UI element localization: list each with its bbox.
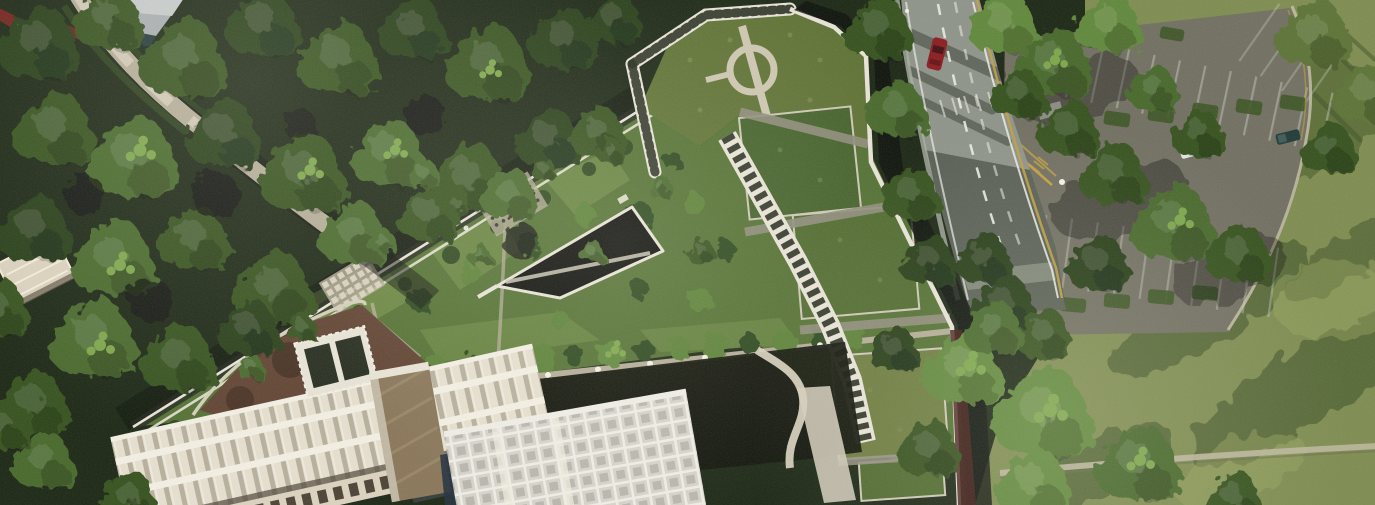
grain-overlay — [0, 0, 1375, 505]
aerial-photograph — [0, 0, 1375, 505]
aerial-photo-canvas — [0, 0, 1375, 505]
